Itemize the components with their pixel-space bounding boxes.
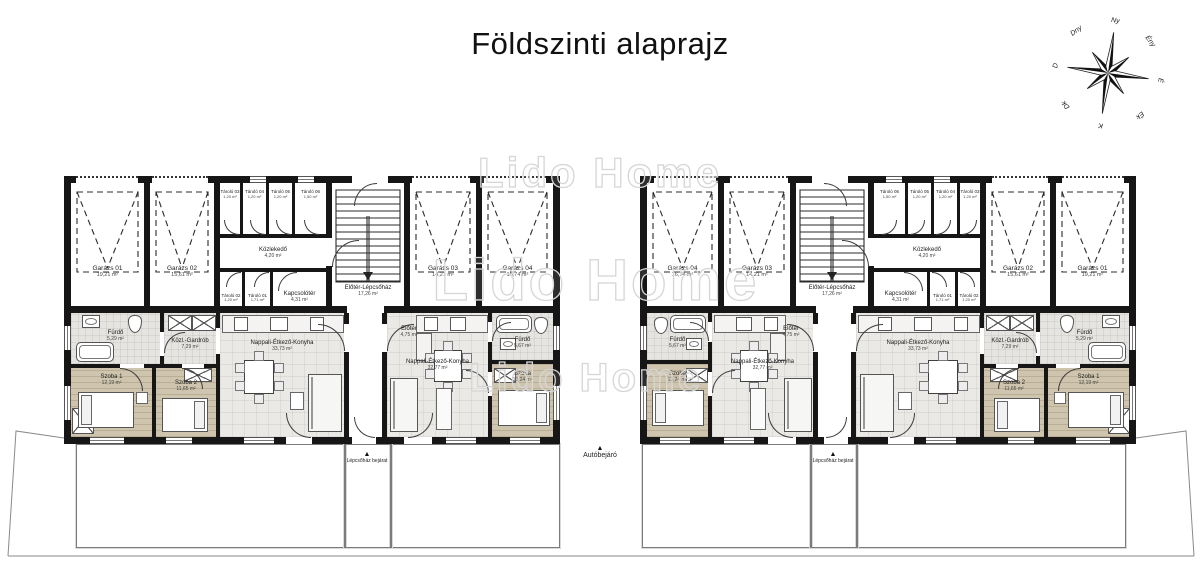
door-swing-icon (882, 220, 897, 235)
room-label-t-rol-06: Tároló 061,50 m² (294, 187, 328, 201)
door-swing-icon (226, 272, 241, 287)
compass-direction-label: É (1156, 78, 1166, 84)
room-name: Tároló 05 (910, 189, 929, 194)
room-name: Tároló 05 (271, 189, 290, 194)
window (64, 326, 71, 350)
room-area: 1,20 m² (274, 195, 288, 200)
wall (240, 176, 243, 236)
room-name: Tároló 06 (880, 189, 899, 194)
room-label-gar-zs-01: Garázs 0119,21 m² (71, 265, 144, 279)
appl-icon (764, 317, 778, 331)
wall (242, 270, 245, 310)
nstand-icon (898, 392, 912, 410)
room-label-el-t-r-l-pcs-h-z: Előtér-Lépcsőház17,26 m² (332, 284, 404, 298)
room-label-gar-zs-04: Garázs 0416,74 m² (647, 265, 718, 279)
door-gap (352, 437, 376, 444)
appl-icon (914, 317, 932, 331)
door-gap (404, 437, 432, 444)
room-area: 14,21 m² (746, 272, 768, 278)
xbox-icon (494, 368, 516, 383)
appl-icon (450, 317, 466, 331)
garage-door-outline-icon (77, 192, 138, 272)
room-label-gar-zs-03: Garázs 0314,21 m² (410, 265, 476, 279)
appl-icon (424, 317, 438, 331)
room-area: 17,26 m² (822, 292, 842, 298)
room-area: 15,61 m² (171, 272, 193, 278)
room-area: 1,20 m² (939, 195, 953, 200)
table-icon (740, 350, 768, 382)
room-label-gar-zs-04: Garázs 0416,74 m² (482, 265, 553, 279)
wall (404, 176, 410, 306)
room-area: 1,20 m² (223, 195, 237, 200)
xbox-icon (686, 368, 708, 383)
compass-direction-label: Dny (1069, 24, 1084, 37)
room-area: 4,20 m² (919, 254, 936, 260)
window (1129, 386, 1136, 420)
xbox-icon (986, 315, 1010, 331)
room-area: 4,20 m² (265, 254, 282, 260)
garage-door-opening (992, 176, 1048, 183)
window (926, 437, 956, 444)
chair-icon (235, 363, 245, 373)
pillow-icon (194, 401, 205, 429)
window (934, 176, 950, 183)
door-swing-icon (276, 220, 291, 235)
building-left: Garázs 0119,21 m²Garázs 0215,61 m²Tároló… (64, 176, 560, 444)
room-area: 15,61 m² (1007, 272, 1029, 278)
chair-icon (425, 369, 435, 379)
room-area: 1,50 m² (883, 195, 897, 200)
wall (152, 368, 156, 437)
room-name: Tároló 02 (221, 293, 240, 298)
garage-door-swing-icon (488, 192, 547, 268)
room-label-kapcsol-t-r: Kapcsolótér4,31 m² (273, 290, 326, 304)
window (250, 176, 266, 183)
room-name: Garázs 03 (428, 265, 458, 272)
room-name: Garázs 01 (93, 265, 123, 272)
garage-door-outline-icon (730, 192, 784, 272)
bed-icon (1068, 392, 1124, 428)
xbox-icon (192, 315, 216, 331)
garage-door-swing-icon (77, 192, 138, 268)
compass-direction-label: Ény (1144, 33, 1159, 48)
window (90, 437, 124, 444)
garage-door-outline-icon (653, 192, 712, 272)
wall (292, 176, 295, 236)
wall (980, 176, 986, 306)
wall (868, 234, 986, 238)
wall (492, 360, 553, 364)
garage-door-outline-icon (416, 192, 470, 272)
appl-icon (736, 317, 752, 331)
door-swing-icon (332, 240, 359, 267)
room-name: Tároló 03 (960, 189, 979, 194)
compass-direction-label: Ny (1111, 17, 1121, 25)
door-swing-icon (824, 183, 847, 206)
room-area: 19,21 m² (1082, 272, 1104, 278)
chair-icon (768, 353, 778, 363)
entrance-label-text: Lépcsőház bejárat (330, 458, 404, 464)
compass-star-icon: NyÉnyÉÉkKDkDDny (1043, 13, 1173, 133)
door-swing-icon (354, 417, 375, 438)
table-icon (928, 360, 958, 394)
pillow-icon (997, 401, 1008, 429)
room-name: Tároló 04 (245, 189, 264, 194)
nstand-icon (290, 392, 304, 410)
garage-door-swing-icon (156, 192, 208, 268)
garage-door-opening (152, 176, 208, 183)
chair-icon (919, 381, 929, 391)
garage-door-opening (412, 176, 470, 183)
chair-icon (958, 363, 968, 373)
door-gap (888, 437, 914, 444)
cab-icon (436, 388, 452, 430)
room-label-el-t-r-l-pcs-h-z: Előtér-Lépcsőház17,26 m² (796, 284, 868, 298)
garage-door-swing-icon (653, 192, 712, 268)
chair-icon (235, 381, 245, 391)
room-name: Tároló 04 (936, 189, 955, 194)
sofa-icon (308, 374, 342, 432)
door-swing-icon (910, 220, 925, 235)
room-label-t-rol-06: Tároló 061,50 m² (873, 187, 907, 201)
garage-door-outline-icon (1062, 192, 1123, 272)
wall (647, 360, 708, 364)
chair-icon (254, 394, 264, 404)
garage-door-outline-icon (488, 192, 547, 272)
door-gap (868, 238, 874, 266)
room-label-k-zleked: Közlekedő4,20 m² (220, 246, 326, 260)
room-area: 4,31 m² (892, 298, 909, 304)
garage-door-outline-icon (992, 192, 1044, 272)
basin-icon (82, 315, 100, 328)
window (1008, 437, 1034, 444)
window (640, 326, 647, 350)
door-swing-icon (904, 272, 923, 291)
room-area: 14,21 m² (432, 272, 454, 278)
room-label-gar-zs-02: Garázs 0215,61 m² (150, 265, 214, 279)
room-name: Garázs 02 (1003, 265, 1033, 272)
room-area: 17,26 m² (358, 292, 378, 298)
garage-door-swing-icon (730, 192, 784, 268)
cab-icon (750, 388, 766, 430)
chair-icon (958, 381, 968, 391)
wall (270, 270, 273, 310)
window (660, 437, 690, 444)
room-name: Garázs 01 (1078, 265, 1108, 272)
pillow-icon (536, 393, 547, 423)
room-area: 1,20 m² (962, 298, 976, 303)
bed-icon (498, 390, 550, 426)
bed-icon (994, 398, 1040, 432)
room-area: 4,31 m² (291, 298, 308, 304)
pillow-icon (1110, 395, 1121, 425)
door-swing-icon (842, 240, 869, 267)
compass-direction-label: Dk (1060, 99, 1071, 110)
room-name: Közlekedő (259, 247, 287, 254)
window (1129, 326, 1136, 350)
door-swing-icon (960, 272, 975, 287)
wall (266, 176, 269, 236)
room-name: Garázs 02 (167, 265, 197, 272)
room-area: 16,74 m² (672, 272, 694, 278)
garage-door-opening (654, 176, 716, 183)
wall (64, 306, 560, 313)
garage-door-opening (76, 176, 138, 183)
door-swing-icon (278, 272, 297, 291)
xbox-icon (1010, 315, 1034, 331)
door-gap (824, 437, 848, 444)
xbox-icon (168, 315, 192, 331)
garage-door-opening (730, 176, 788, 183)
stair-divider-icon (831, 216, 833, 282)
wall (718, 176, 724, 306)
chair-icon (768, 369, 778, 379)
chair-icon (731, 353, 741, 363)
entrance-label: ▲ Lépcsőház bejárat (796, 452, 870, 476)
wall (214, 176, 220, 306)
chair-icon (443, 341, 453, 351)
garage-door-swing-icon (992, 192, 1044, 268)
wall (214, 234, 332, 238)
window (510, 437, 540, 444)
room-name: Garázs 04 (503, 265, 533, 272)
door-swing-icon (936, 220, 951, 235)
window (886, 176, 902, 183)
room-area: 1,71 m² (251, 298, 265, 303)
window (1076, 437, 1110, 444)
room-name: Tároló 01 (933, 293, 952, 298)
room-name: Garázs 04 (668, 265, 698, 272)
compass-direction-label: K (1098, 121, 1104, 129)
window (166, 437, 192, 444)
appl-icon (234, 317, 248, 331)
wall (476, 176, 482, 306)
chair-icon (274, 363, 284, 373)
door-swing-icon (254, 272, 269, 287)
chair-icon (462, 353, 472, 363)
building-right: Garázs 0119,21 m²Garázs 0215,61 m²Tároló… (640, 176, 1136, 444)
garage-door-opening (1062, 176, 1124, 183)
wall (640, 306, 1136, 313)
door-swing-icon (224, 220, 239, 235)
room-name: Tároló 06 (301, 189, 320, 194)
garage-door-outline-icon (156, 192, 208, 272)
chair-icon (274, 381, 284, 391)
room-area: 1,50 m² (304, 195, 318, 200)
door-gap (286, 437, 312, 444)
bed-icon (78, 392, 134, 428)
table-icon (434, 350, 462, 382)
room-name: Tároló 01 (248, 293, 267, 298)
bed-icon (162, 398, 208, 432)
window (553, 326, 560, 350)
wall (931, 176, 934, 236)
pillow-icon (81, 395, 92, 425)
wall (144, 176, 150, 306)
wall (1044, 368, 1048, 437)
compass-rose: NyÉnyÉÉkKDkDDny (1043, 13, 1173, 133)
room-area: 19,21 m² (97, 272, 119, 278)
window (244, 437, 274, 444)
room-name: Tároló 02 (959, 293, 978, 298)
room-name: Tároló 03 (220, 189, 239, 194)
door-gap (216, 328, 220, 354)
chair-icon (254, 351, 264, 361)
drive-label-text: Autóbejáró (558, 452, 642, 459)
garage-door-swing-icon (1062, 192, 1123, 268)
basin-icon (1102, 315, 1120, 328)
door-gap (768, 437, 796, 444)
nstand-icon (136, 392, 148, 404)
window (640, 386, 647, 420)
door-swing-icon (354, 183, 377, 206)
window (298, 176, 314, 183)
wall (905, 176, 908, 236)
door-swing-icon (304, 220, 319, 235)
door-swing-icon (826, 417, 847, 438)
room-name: Kapcsolótér (885, 291, 917, 298)
room-name: Előtér-Lépcsőház (345, 285, 392, 292)
door-swing-icon (962, 220, 977, 235)
stair-direction-arrow-icon (827, 272, 837, 280)
chair-icon (938, 351, 948, 361)
door-gap (812, 176, 848, 183)
stair-direction-arrow-icon (363, 272, 373, 280)
room-label-k-zleked: Közlekedő4,20 m² (874, 246, 980, 260)
room-label-gar-zs-01: Garázs 0119,21 m² (1056, 265, 1129, 279)
compass-direction-label: Ék (1134, 110, 1146, 122)
wall (790, 176, 796, 306)
chair-icon (749, 341, 759, 351)
door-gap (326, 238, 332, 266)
appl-icon (954, 317, 968, 331)
wall (214, 268, 332, 272)
garage-door-opening (484, 176, 546, 183)
boundary-line (1136, 431, 1194, 556)
room-area: 1,20 m² (963, 195, 977, 200)
door-swing-icon (250, 220, 265, 235)
room-area: 1,20 m² (224, 298, 238, 303)
wall (927, 270, 930, 310)
wall (957, 176, 960, 236)
chair-icon (425, 353, 435, 363)
room-area: 1,20 m² (248, 195, 262, 200)
room-area: 1,71 m² (936, 298, 950, 303)
room-area: 1,20 m² (913, 195, 927, 200)
door-gap (352, 176, 388, 183)
wall (955, 270, 958, 310)
wall (64, 437, 560, 444)
window (446, 437, 476, 444)
chair-icon (919, 363, 929, 373)
door-gap (980, 328, 984, 354)
window (64, 386, 71, 420)
floor-plan-page: Földszinti alaprajz NyÉnyÉÉkKDkDDny ▲ Lé… (0, 0, 1200, 565)
nstand-icon (1054, 392, 1066, 404)
boundary-line (8, 431, 64, 556)
room-name: Kapcsolótér (284, 291, 316, 298)
sofa-icon (860, 374, 894, 432)
garage-door-swing-icon (416, 192, 470, 268)
room-name: Garázs 03 (742, 265, 772, 272)
entrance-label: ▲ Lépcsőház bejárat (330, 452, 404, 476)
appl-icon (270, 317, 288, 331)
drive-label: ▲ Autóbejáró (558, 446, 642, 472)
stair-divider-icon (367, 216, 369, 282)
entrance-label-text: Lépcsőház bejárat (796, 458, 870, 464)
table-icon (244, 360, 274, 394)
tub-icon (76, 342, 114, 362)
door-gap (347, 306, 384, 313)
pillow-icon (655, 393, 666, 423)
bed-icon (652, 390, 704, 426)
room-label-kapcsol-t-r: Kapcsolótér4,31 m² (874, 290, 927, 304)
door-gap (816, 306, 853, 313)
chair-icon (938, 394, 948, 404)
room-label-gar-zs-03: Garázs 0314,21 m² (724, 265, 790, 279)
window (553, 386, 560, 420)
compass-direction-label: D (1052, 63, 1060, 69)
room-area: 16,74 m² (507, 272, 529, 278)
room-label-gar-zs-02: Garázs 0215,61 m² (986, 265, 1050, 279)
door-swing-icon (932, 272, 947, 287)
tub-icon (1088, 342, 1126, 362)
wall (1050, 176, 1056, 306)
room-name: Közlekedő (913, 247, 941, 254)
room-name: Előtér-Lépcsőház (809, 285, 856, 292)
window (724, 437, 754, 444)
